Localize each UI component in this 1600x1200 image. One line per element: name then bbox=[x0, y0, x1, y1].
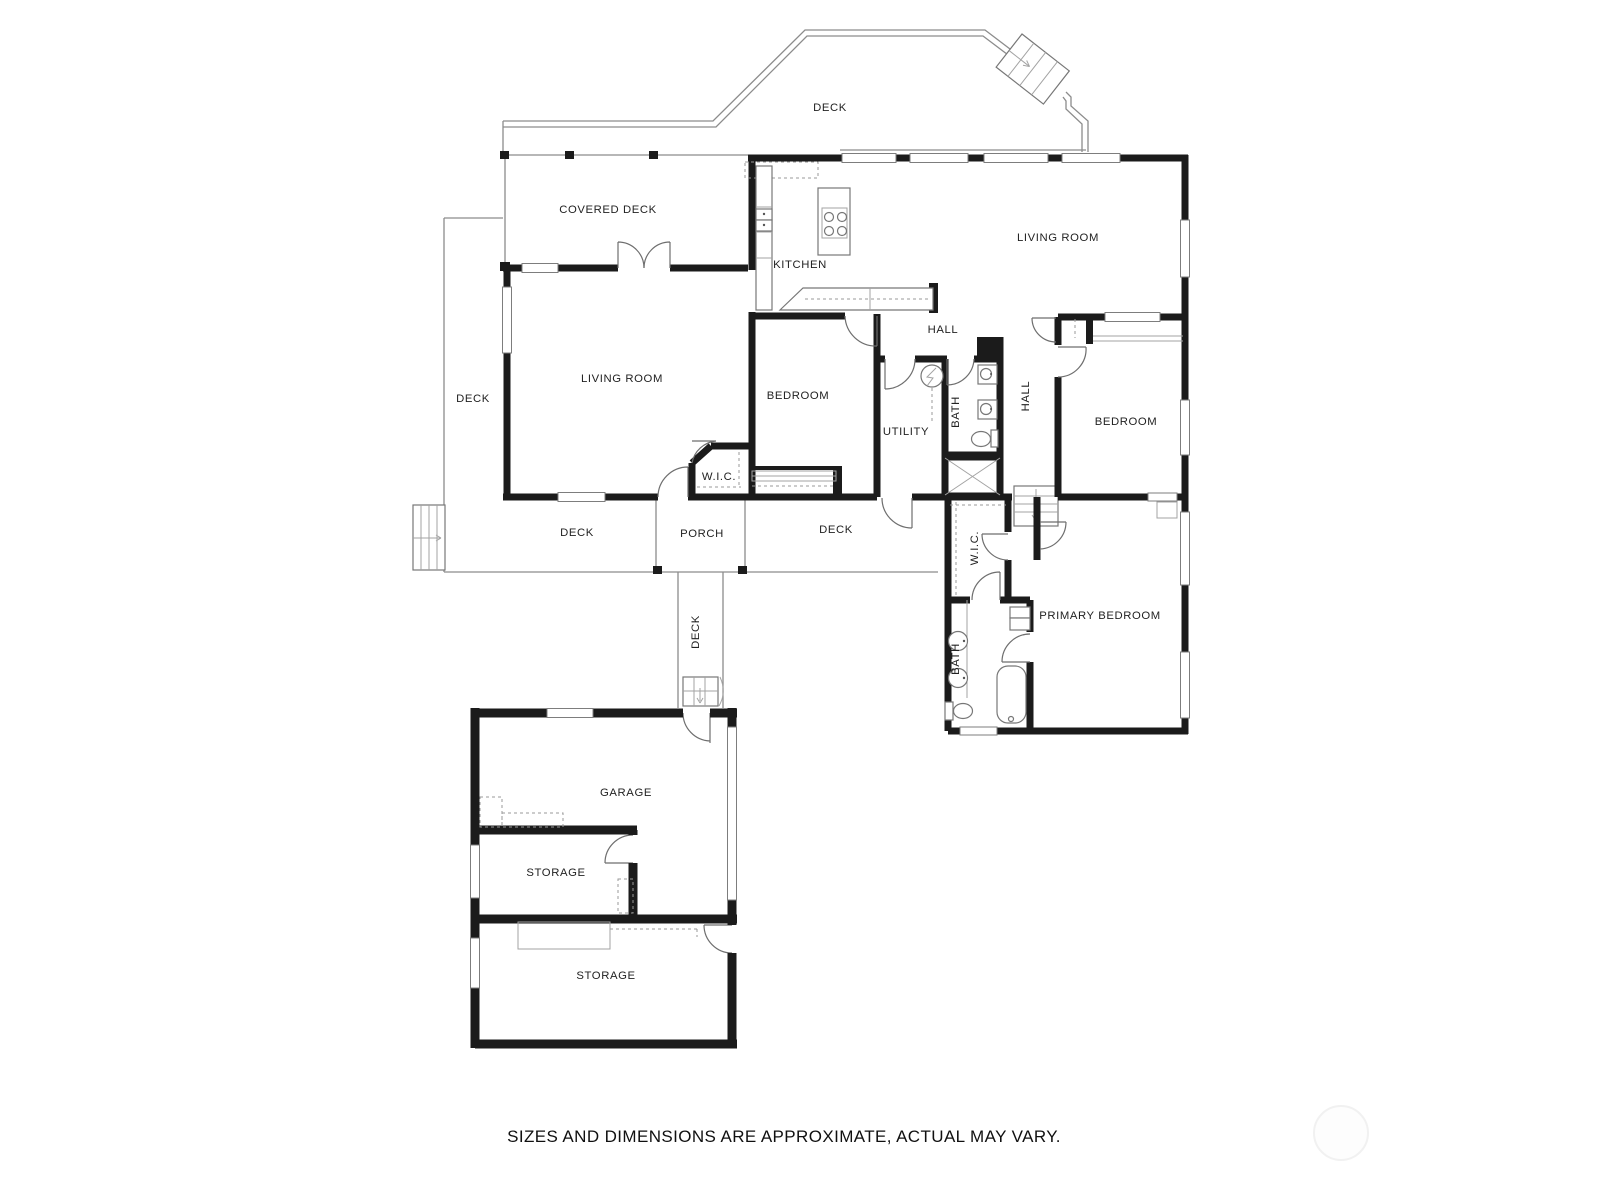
bedroom-cabinet bbox=[1157, 502, 1177, 518]
deck-stairs-left bbox=[413, 505, 445, 570]
closet-shelf bbox=[1093, 336, 1183, 341]
room-label-utility: UTILITY bbox=[883, 426, 929, 438]
room-label-living-room-upper: LIVING ROOM bbox=[1017, 232, 1099, 244]
toilet-tank bbox=[945, 702, 953, 720]
room-label-deck-top: DECK bbox=[813, 102, 847, 114]
room-labels: DECK COVERED DECK KITCHEN LIVING ROOM LI… bbox=[456, 102, 1161, 982]
toilet bbox=[954, 704, 973, 719]
room-label-storage-lower: STORAGE bbox=[576, 970, 635, 982]
room-label-living-room-left: LIVING ROOM bbox=[581, 373, 663, 385]
deck-stairs-top-right bbox=[996, 34, 1069, 104]
room-label-deck-bottom-left: DECK bbox=[560, 527, 594, 539]
room-label-bedroom-middle: BEDROOM bbox=[767, 390, 830, 402]
room-label-bath-middle: BATH bbox=[950, 396, 962, 428]
kitchen-counter bbox=[756, 166, 772, 310]
french-door-right bbox=[644, 242, 670, 268]
workbench bbox=[518, 922, 610, 949]
bedroom-middle-door bbox=[845, 316, 877, 346]
linen-shelf bbox=[1010, 607, 1030, 618]
room-label-wic-primary: W.I.C. bbox=[969, 531, 981, 565]
room-label-hall-upper: HALL bbox=[928, 324, 959, 336]
room-label-deck-walkway: DECK bbox=[690, 615, 702, 649]
water-heater-icon bbox=[921, 365, 943, 387]
storage-lower-door bbox=[704, 925, 732, 953]
room-label-deck-left: DECK bbox=[456, 393, 490, 405]
kitchen-fixtures bbox=[745, 162, 933, 310]
chimney-chase bbox=[977, 337, 1003, 357]
tub-drain bbox=[1009, 717, 1014, 722]
bath-middle-door bbox=[947, 359, 974, 385]
utility-fixtures bbox=[921, 365, 943, 424]
bathtub bbox=[997, 666, 1026, 723]
bedroom-right-door bbox=[1058, 347, 1086, 377]
deck-door bbox=[882, 498, 912, 528]
room-label-garage: GARAGE bbox=[600, 787, 652, 799]
storage-upper-door bbox=[605, 835, 633, 863]
kitchen-peninsula bbox=[780, 288, 933, 310]
room-label-porch: PORCH bbox=[680, 528, 724, 540]
toilet bbox=[972, 432, 991, 447]
room-label-covered-deck: COVERED DECK bbox=[559, 204, 657, 216]
closet-door-right-bedroom bbox=[1032, 318, 1056, 342]
disclaimer-text: SIZES AND DIMENSIONS ARE APPROXIMATE, AC… bbox=[507, 1127, 1061, 1146]
garage-entry-door bbox=[683, 713, 710, 743]
french-door-left bbox=[618, 242, 644, 268]
room-label-deck-bottom-mid: DECK bbox=[819, 524, 853, 536]
room-label-hall-middle: HALL bbox=[1020, 381, 1032, 412]
watermark-circle bbox=[1314, 1106, 1368, 1160]
kitchen-island bbox=[818, 188, 850, 255]
garage-walls bbox=[471, 708, 738, 1048]
room-label-wic-left: W.I.C. bbox=[702, 471, 736, 483]
room-label-primary-bedroom: PRIMARY BEDROOM bbox=[1039, 610, 1161, 622]
garage-door bbox=[728, 727, 737, 900]
closet-stub-wall bbox=[1086, 317, 1093, 344]
wic-primary-door-east bbox=[982, 534, 1008, 560]
room-label-kitchen: KITCHEN bbox=[773, 259, 827, 271]
toilet-tank bbox=[991, 430, 998, 447]
floor-plan-page: DECK COVERED DECK KITCHEN LIVING ROOM LI… bbox=[0, 0, 1600, 1200]
living-room-door bbox=[658, 467, 688, 497]
walkway-stairs bbox=[683, 677, 723, 706]
bath-primary-door bbox=[1002, 634, 1030, 662]
room-label-storage-upper: STORAGE bbox=[526, 867, 585, 879]
floor-plan-drawing: DECK COVERED DECK KITCHEN LIVING ROOM LI… bbox=[0, 0, 1600, 1200]
room-label-bedroom-right: BEDROOM bbox=[1095, 416, 1158, 428]
utility-door bbox=[885, 359, 915, 389]
room-label-bath-primary: BATH bbox=[950, 643, 962, 675]
wic-primary-door-south bbox=[972, 572, 1000, 600]
